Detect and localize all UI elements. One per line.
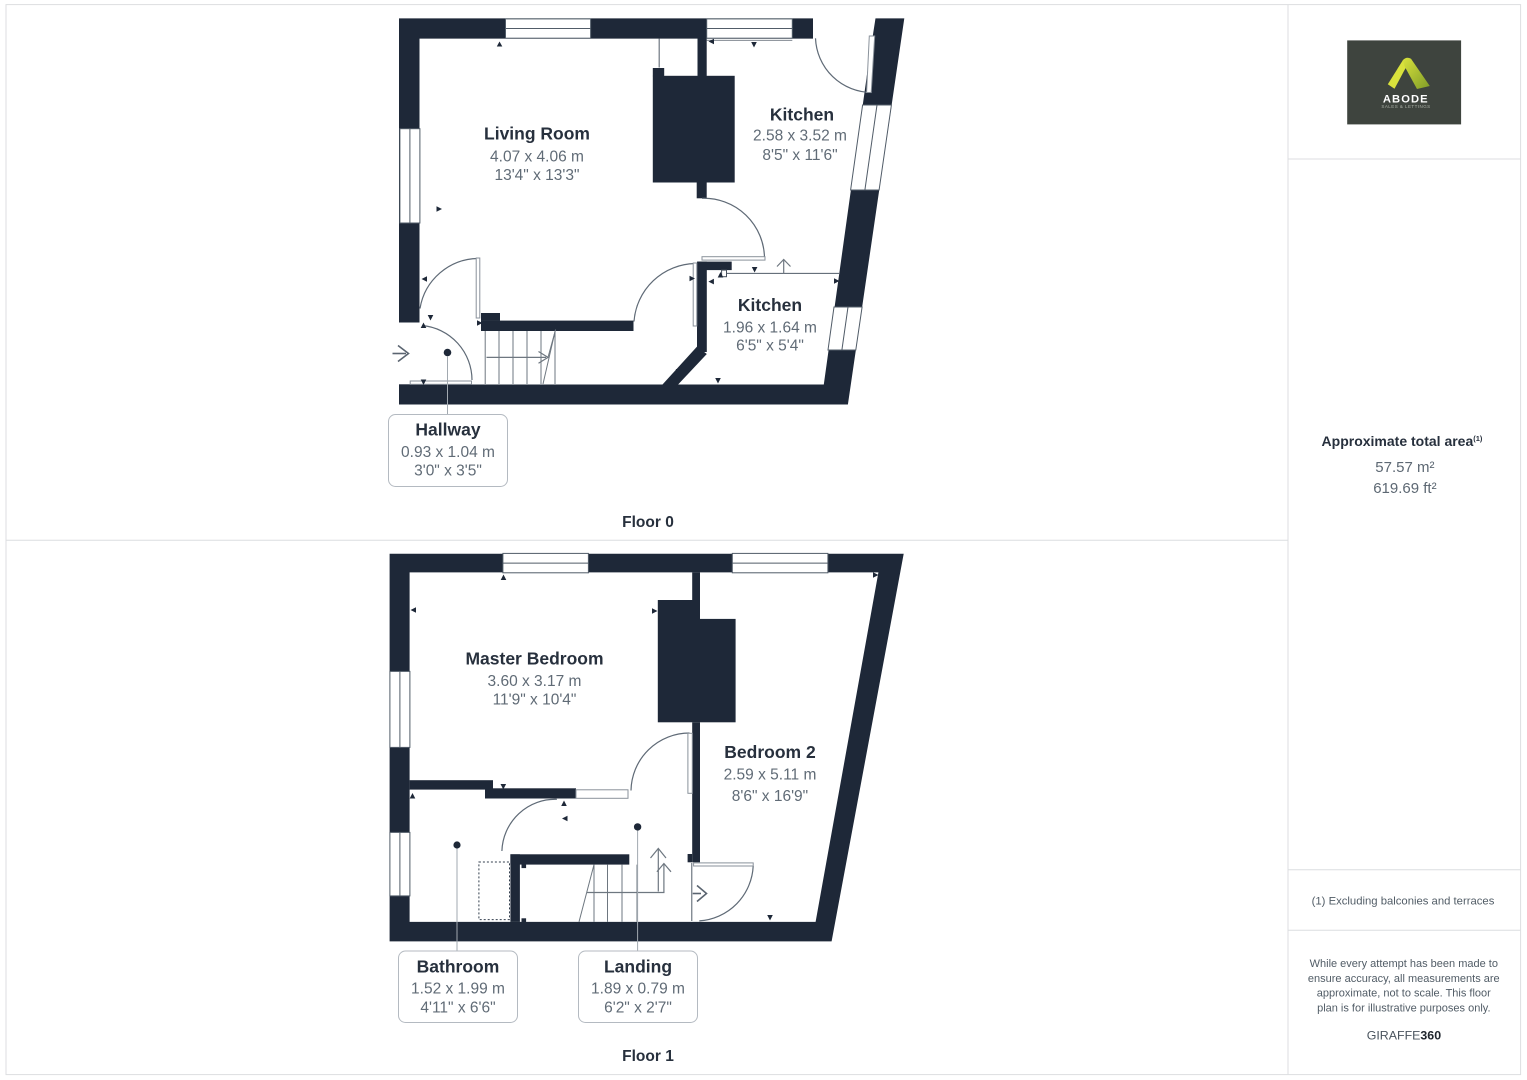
svg-text:SALES & LETTINGS: SALES & LETTINGS <box>1381 104 1430 109</box>
svg-text:3.60 x 3.17 m: 3.60 x 3.17 m <box>488 673 582 690</box>
svg-text:Landing: Landing <box>604 957 672 977</box>
svg-text:4'11" x 6'6": 4'11" x 6'6" <box>420 1000 495 1017</box>
svg-text:8'5" x 11'6": 8'5" x 11'6" <box>762 147 837 164</box>
svg-text:8'6" x 16'9": 8'6" x 16'9" <box>732 788 808 805</box>
svg-text:Floor 0: Floor 0 <box>622 514 674 531</box>
svg-text:Master Bedroom: Master Bedroom <box>465 649 603 669</box>
svg-text:Approximate total area(1): Approximate total area(1) <box>1322 433 1483 449</box>
svg-text:0.93 x 1.04 m: 0.93 x 1.04 m <box>401 444 495 461</box>
svg-text:619.69 ft²: 619.69 ft² <box>1373 480 1436 497</box>
svg-text:13'4" x 13'3": 13'4" x 13'3" <box>494 167 579 184</box>
svg-text:1.89 x 0.79 m: 1.89 x 0.79 m <box>591 981 685 998</box>
svg-text:Kitchen: Kitchen <box>738 295 802 315</box>
svg-text:2.59 x 5.11 m: 2.59 x 5.11 m <box>724 767 817 784</box>
svg-text:While every attempt has been m: While every attempt has been made to <box>1310 958 1498 970</box>
svg-text:Kitchen: Kitchen <box>770 105 834 125</box>
svg-text:(1) Excluding balconies and te: (1) Excluding balconies and terraces <box>1312 896 1495 908</box>
svg-text:Bedroom 2: Bedroom 2 <box>724 742 816 762</box>
svg-text:3'0" x 3'5": 3'0" x 3'5" <box>414 463 482 480</box>
svg-text:4.07 x 4.06 m: 4.07 x 4.06 m <box>490 149 584 166</box>
svg-text:57.57 m²: 57.57 m² <box>1375 459 1434 476</box>
svg-text:ensure accuracy, all measureme: ensure accuracy, all measurements are <box>1308 973 1500 985</box>
svg-text:1.96 x 1.64 m: 1.96 x 1.64 m <box>723 320 817 337</box>
svg-text:1.52 x 1.99 m: 1.52 x 1.99 m <box>411 981 505 998</box>
svg-text:approximate, not to scale. Thi: approximate, not to scale. This floor <box>1317 988 1491 1000</box>
svg-text:6'2" x 2'7": 6'2" x 2'7" <box>604 1000 672 1017</box>
svg-text:plan is for illustrative purpo: plan is for illustrative purposes only. <box>1317 1002 1490 1014</box>
svg-text:11'9" x 10'4": 11'9" x 10'4" <box>493 692 577 709</box>
svg-text:Hallway: Hallway <box>415 420 480 440</box>
svg-text:2.58 x 3.52 m: 2.58 x 3.52 m <box>753 128 847 145</box>
svg-text:6'5" x 5'4": 6'5" x 5'4" <box>736 338 804 355</box>
svg-text:Living Room: Living Room <box>484 124 590 144</box>
svg-text:Bathroom: Bathroom <box>417 957 500 977</box>
svg-text:Floor 1: Floor 1 <box>622 1048 674 1065</box>
svg-text:GIRAFFE360: GIRAFFE360 <box>1367 1029 1441 1043</box>
